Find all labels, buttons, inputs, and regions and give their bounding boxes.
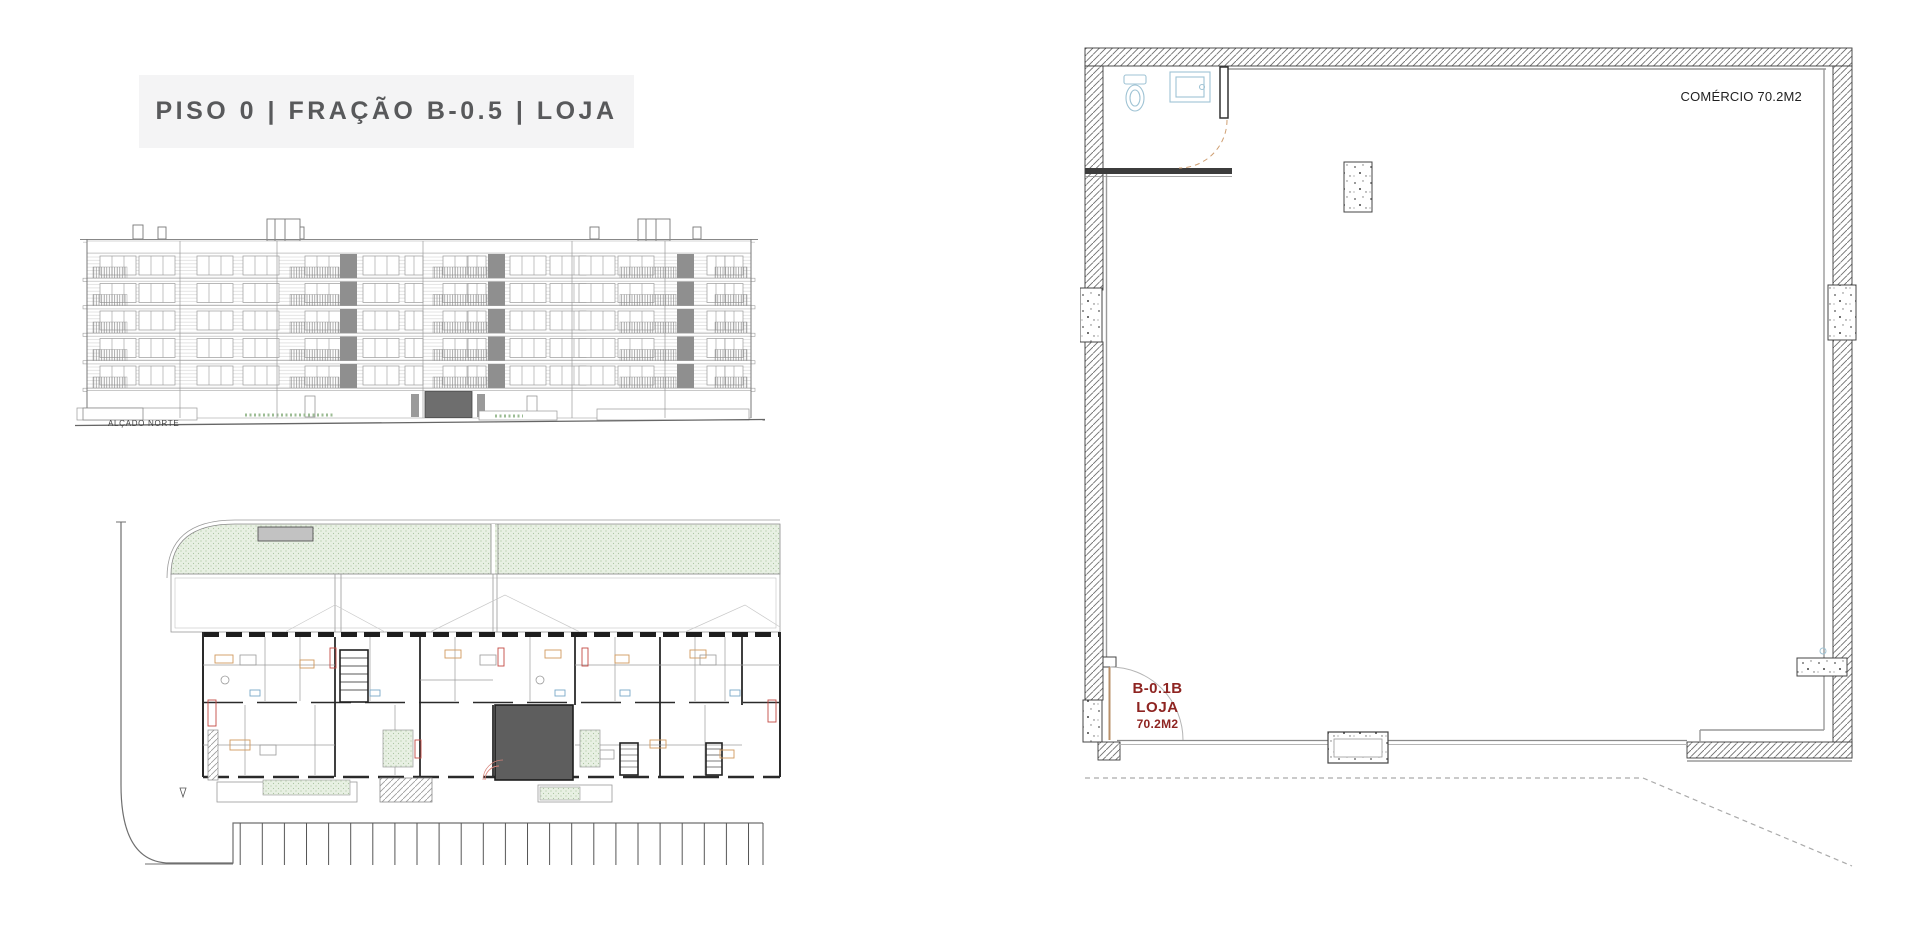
parking-stalls (233, 823, 763, 865)
wc-door-swing-arc (1179, 120, 1227, 168)
title-block: PISO 0 | FRAÇÃO B-0.5 | LOJA (139, 75, 634, 148)
loja-floor-plan (1080, 35, 1870, 880)
furniture-orange (215, 650, 734, 758)
facade-floors (83, 253, 755, 391)
wc-toilet (1124, 75, 1146, 84)
wc-room (1085, 67, 1232, 177)
north-elevation-drawing (75, 178, 765, 438)
structural-pillars (1080, 162, 1856, 742)
plan-sheet-page: PISO 0 | FRAÇÃO B-0.5 | LOJA (0, 0, 1920, 926)
page-title: PISO 0 | FRAÇÃO B-0.5 | LOJA (155, 97, 617, 126)
furniture-blue (250, 690, 740, 696)
garden-band (167, 520, 780, 578)
highlighted-unit (495, 705, 573, 780)
building-block (203, 632, 780, 780)
storefront-glazing (1117, 732, 1687, 763)
site-plan-drawing (85, 415, 795, 875)
exterior-walls (1085, 48, 1852, 760)
comercio-area-label: COMÉRCIO 70.2M2 (1630, 89, 1802, 104)
free-standing-column (1344, 162, 1372, 212)
unit-code: B-0.1B (1100, 679, 1215, 698)
terrace-row (171, 574, 780, 632)
unit-type: LOJA (1100, 698, 1215, 717)
unit-label: B-0.1B LOJA 70.2M2 (1100, 679, 1215, 732)
unit-area: 70.2M2 (1100, 717, 1215, 732)
roof-chimneys (133, 219, 701, 241)
site-limit-dashed (1085, 778, 1852, 866)
furniture-beds (221, 655, 716, 759)
